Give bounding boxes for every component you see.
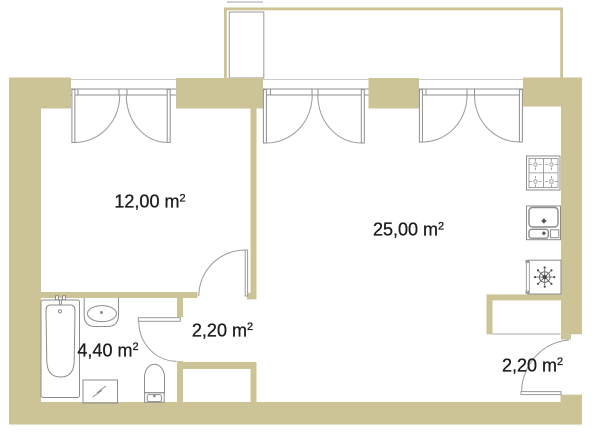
svg-text:4,40 m2: 4,40 m2 xyxy=(77,340,138,360)
svg-text:2,20 m2: 2,20 m2 xyxy=(192,320,253,340)
svg-text:25,00 m2: 25,00 m2 xyxy=(373,220,444,240)
svg-text:12,00 m2: 12,00 m2 xyxy=(114,192,185,212)
svg-text:2,20 m2: 2,20 m2 xyxy=(502,355,563,375)
